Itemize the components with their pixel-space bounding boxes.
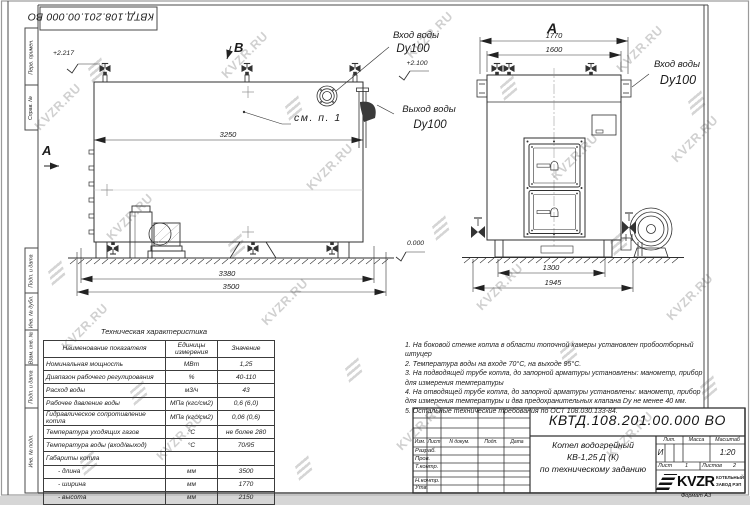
doc-name-line1: Котел водогрейный	[530, 441, 656, 450]
elevation-inlet: +2.100	[407, 61, 428, 68]
frame-label-inv-dubl: Инв. № дубл.	[25, 293, 38, 330]
table-row: Температура уходящих газов°Сне более 280	[44, 425, 275, 438]
dim-front-overall: 1945	[545, 279, 562, 287]
row-prov: Пров.	[415, 457, 430, 463]
note-line: 2. Температура воды на входе 70°С, на вы…	[405, 360, 713, 369]
lug-center-marks	[101, 86, 254, 238]
dim-front-inner-width: 1600	[546, 46, 563, 54]
outlet-pipe	[357, 88, 376, 148]
skid-base	[495, 240, 612, 257]
kvzr-logo-sub2: ЗАВОД РЭП	[716, 482, 741, 487]
lit-value: И	[656, 449, 665, 457]
frame-label-podp-data-2: Подп. и дата	[25, 365, 38, 408]
note-line: 4. На отводящей трубе котла, до запорной…	[405, 388, 713, 407]
lit-header: Лит.	[656, 438, 683, 443]
section-marker-a: A	[42, 144, 51, 157]
frame-label-sprav-n: Справ. №	[25, 85, 38, 130]
frame-label-inv-podl: Инв. № подл.	[25, 408, 38, 493]
sheets-label: Листов	[702, 464, 722, 470]
sheet-label: Лист	[658, 464, 672, 470]
dim-side-length-outer: 3500	[223, 283, 240, 291]
table-row: Гидравлическое сопротивление котлаМПа (к…	[44, 410, 275, 425]
elevation-ground: 0.000	[407, 241, 424, 248]
burner-fan-assembly	[130, 206, 185, 258]
inlet-flange	[317, 86, 337, 106]
col-list: Лист	[427, 440, 441, 445]
table-row: Расход водым3/ч43	[44, 384, 275, 397]
front-view-drawing	[462, 37, 684, 292]
dim-front-skid: 1300	[543, 264, 560, 272]
top-valves	[100, 64, 361, 83]
drawing-sheet: KVZR.RU KVZR.RU KVZR.RU KVZR.RU KVZR.RU …	[0, 0, 750, 496]
sheet-number: 1	[685, 464, 688, 470]
see-note-callout: см. п. 1	[294, 113, 342, 124]
note-line: 3. На подводящей трубе котла, до запорно…	[405, 369, 713, 388]
col-ndoc: N докум.	[441, 440, 478, 445]
format-label: Формат А3	[656, 494, 736, 500]
top-stamp-designation: КВТД.108.201.00.000 ВО	[44, 11, 154, 22]
dim-side-width: 3250	[220, 131, 237, 139]
table-row: - высотамм2150	[44, 491, 275, 504]
note-line: 1. На боковой стенке котла в области топ…	[405, 341, 713, 360]
dim-front-outer-width: 1770	[546, 32, 563, 40]
kvzr-logo-text: KVZR	[677, 474, 714, 490]
inlet-dn-right: Dy100	[660, 74, 696, 87]
col-izm: Изм.	[413, 440, 427, 445]
kvzr-logo-sub1: КОТЕЛЬНЫЙ	[716, 475, 744, 480]
furnace-doors	[524, 138, 585, 237]
inlet-leader	[632, 74, 649, 87]
masshtab-header: Масштаб	[710, 438, 745, 443]
dim-side-length-inner: 3380	[219, 270, 236, 278]
supports	[96, 242, 349, 258]
sheets-total: 2	[733, 464, 736, 470]
table-row: - ширинамм1770	[44, 478, 275, 491]
view-markers	[44, 46, 231, 166]
inlet-dn-top: Dy100	[396, 44, 429, 56]
left-valve	[471, 218, 485, 238]
frame-label-vzam-inv: Взам. инв. №	[25, 330, 38, 365]
table-row: Номинальная мощностьМВт1,25	[44, 358, 275, 371]
technical-notes: 1. На боковой стенке котла в области топ…	[405, 341, 713, 416]
doc-name-line2: КВ-1,25 Д (К)	[530, 453, 656, 462]
inlet-label-right: Вход воды	[654, 60, 700, 70]
inlet-label-top: Вход воды	[393, 31, 439, 41]
col-podp: Подп.	[478, 440, 504, 445]
table-row: - длинамм3500	[44, 465, 275, 478]
frame-label-perv-primen: Перв. примен.	[25, 28, 38, 85]
col-data: Дата	[504, 440, 530, 445]
row-razrab: Разраб.	[415, 449, 436, 455]
tech-table: Наименование показателя Единицы измерени…	[43, 340, 275, 505]
outlet-dn: Dy100	[413, 120, 446, 132]
table-row: Температура воды (вход/выход)°С70/95	[44, 439, 275, 452]
elevation-top: +2.217	[53, 51, 74, 58]
view-marker-b: B	[234, 41, 243, 54]
frame-label-podp-data-1: Подп. и дата	[25, 248, 38, 293]
scale-value: 1:20	[710, 449, 745, 457]
massa-header: Масса	[683, 438, 710, 443]
row-utv: Утв.	[415, 486, 428, 492]
row-nkontr: Н.контр.	[415, 479, 440, 485]
table-row: Габариты котла	[44, 452, 275, 465]
table-row: Диапазон рабочего регулирования%40-110	[44, 371, 275, 384]
row-tkontr: Т.контр.	[415, 465, 438, 471]
side-view-drawing	[44, 46, 429, 296]
title-block-designation: КВТД.108.201.00.000 ВО	[530, 413, 745, 427]
table-header-row: Наименование показателя Единицы измерени…	[44, 341, 275, 358]
doc-name-line3: по техническому заданию	[530, 465, 656, 474]
table-row: Рабочее давление водыМПа (кгс/см2)0,6 (6…	[44, 397, 275, 410]
tech-table-title: Техническая характеристика	[101, 328, 207, 336]
outlet-label: Выход воды	[402, 105, 455, 115]
